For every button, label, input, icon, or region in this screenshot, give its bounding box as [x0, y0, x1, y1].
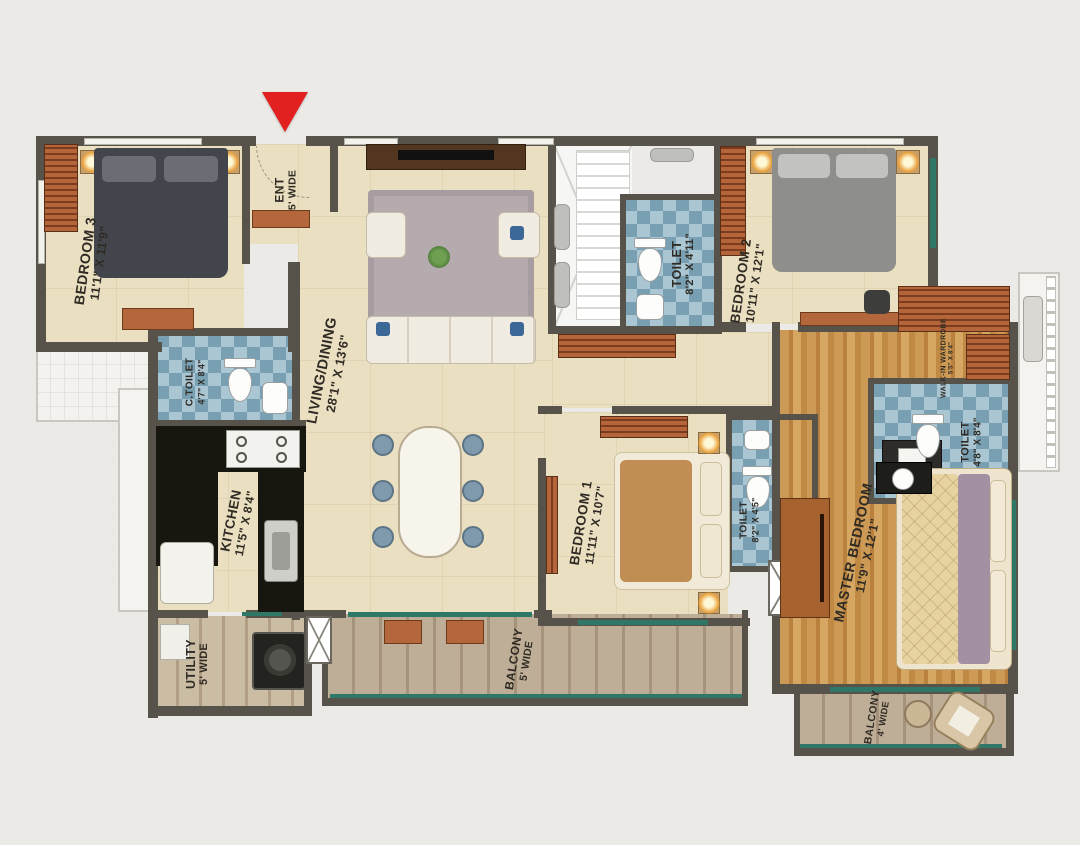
- wall-toilet-top-top: [620, 194, 720, 200]
- toilet-top-wc-tank: [634, 238, 666, 248]
- wall-bedroom2-bottom-a: [714, 322, 746, 332]
- wall-toilet-top-left: [620, 194, 626, 336]
- bedroom2-pillow-right: [836, 154, 888, 178]
- wall-master-left-b: [772, 614, 780, 694]
- wall-bedroom3-ent: [242, 146, 250, 264]
- bedroom2-right-window: [930, 158, 936, 248]
- bedroom1-side-wardrobe: [546, 476, 558, 574]
- dining-chair-5: [462, 480, 484, 502]
- mtoilet-wc-tank: [912, 414, 944, 424]
- bedroom1-top-wardrobe: [600, 416, 688, 438]
- washing-machine-drum: [264, 644, 296, 676]
- bedroom3-dresser: [122, 308, 194, 330]
- bedroom2-chair: [864, 290, 890, 314]
- tv-screen: [398, 150, 494, 160]
- bedroom1-lamp-top: [698, 432, 720, 454]
- balcony-master-table: [904, 700, 932, 728]
- ent-door-arc: [256, 146, 310, 200]
- master-pillow-bottom: [990, 570, 1006, 652]
- bedroom1-bottom-window: [578, 620, 708, 625]
- hall-shoe-rack: [558, 334, 676, 358]
- bedroom2-wardrobe: [720, 146, 746, 256]
- wall-balcony-main-bottom: [322, 698, 748, 706]
- dining-table: [398, 426, 462, 558]
- bedroom2-lamp-left: [751, 151, 773, 173]
- balcony-planter-2: [446, 620, 484, 644]
- master-quilt: [902, 474, 958, 664]
- duct-shaft-balcony: [306, 616, 332, 664]
- sofa-pillow-left: [376, 322, 390, 336]
- wall-master-left-a: [772, 322, 780, 562]
- wall-utility-bottom: [148, 706, 312, 716]
- walkin-wardrobe-unit: [898, 286, 1010, 332]
- walkin-wardrobe-unit-2: [966, 334, 1010, 380]
- dining-chair-2: [372, 480, 394, 502]
- living-balcony-glass: [348, 612, 532, 617]
- stove-burner-3: [236, 452, 247, 463]
- bedroom3-pillow-left: [102, 156, 156, 182]
- wall-balcony-master-bottom: [794, 748, 1014, 756]
- geyser-unit: [1023, 296, 1043, 362]
- stove-burner-1: [236, 436, 247, 447]
- bedroom1-pillow-bottom: [700, 524, 722, 578]
- wall-bedroom1-left: [538, 458, 546, 626]
- bedroom3-pillow-right: [164, 156, 218, 182]
- ctoilet-wc-tank: [224, 358, 256, 368]
- bedroom3-wardrobe: [44, 144, 78, 232]
- door-mat-1: [554, 204, 570, 250]
- ent-console: [252, 210, 310, 228]
- wall-lobby-bottom: [548, 326, 722, 334]
- bedroom3-top-window: [84, 138, 202, 145]
- wall-ent-right: [330, 146, 338, 212]
- dining-chair-6: [462, 526, 484, 548]
- armchair-right-pillow: [510, 226, 524, 240]
- wall-kitchen-bottom-a: [148, 610, 208, 618]
- ledge-right-grill: [1046, 276, 1056, 468]
- bedroom2-pillow-left: [778, 154, 830, 178]
- wall-bedroom3-bottom: [36, 342, 162, 352]
- stove: [226, 430, 300, 468]
- master-blanket: [958, 474, 990, 664]
- wall-bedroom1-top-a: [538, 406, 562, 414]
- wall-balcony-master-left: [794, 692, 800, 752]
- kitchen-sink-basin: [272, 532, 290, 570]
- sofa-pillow-right: [510, 322, 524, 336]
- balcony-main-rail: [330, 694, 742, 698]
- dining-chair-1: [372, 434, 394, 456]
- toilet-top-basin: [636, 294, 664, 320]
- bedroom2-lamp-right: [897, 151, 919, 173]
- armchair-left: [366, 212, 406, 258]
- fridge: [160, 542, 214, 604]
- wall-mtoilet-left: [868, 378, 874, 504]
- toilet1-basin: [744, 430, 770, 450]
- bedroom1-blanket: [620, 460, 692, 582]
- floor-plan: BEDROOM 3 11'1" X 11'9" ENT 5' WIDE LIVI…: [0, 0, 1080, 845]
- balcony-planter-1: [384, 620, 422, 644]
- master-pillow-top: [990, 480, 1006, 562]
- kitchen-door-glass: [242, 612, 282, 616]
- door-mat-2: [554, 262, 570, 308]
- plant: [428, 246, 450, 268]
- mtoilet-basin: [892, 468, 914, 490]
- wall-balcony-master-right: [1006, 692, 1014, 752]
- bedroom1-lamp-bottom: [698, 592, 720, 614]
- toilet1-wc-tank: [742, 466, 772, 476]
- entrance-arrow-icon: [262, 92, 308, 132]
- dining-chair-4: [462, 434, 484, 456]
- wall-balcony-main-right: [742, 610, 748, 706]
- utility-shelf: [160, 624, 190, 660]
- ctoilet-basin: [262, 382, 288, 414]
- bedroom1-pillow-top: [700, 462, 722, 516]
- master-cabinet-handle: [820, 514, 824, 602]
- bedroom2-top-window: [756, 138, 904, 145]
- stove-burner-2: [276, 436, 287, 447]
- stove-burner-4: [276, 452, 287, 463]
- dining-chair-3: [372, 526, 394, 548]
- door-mat-3: [650, 148, 694, 162]
- ledge-kitchen-side: [118, 388, 150, 612]
- wall-bedroom1-top-b: [612, 406, 780, 414]
